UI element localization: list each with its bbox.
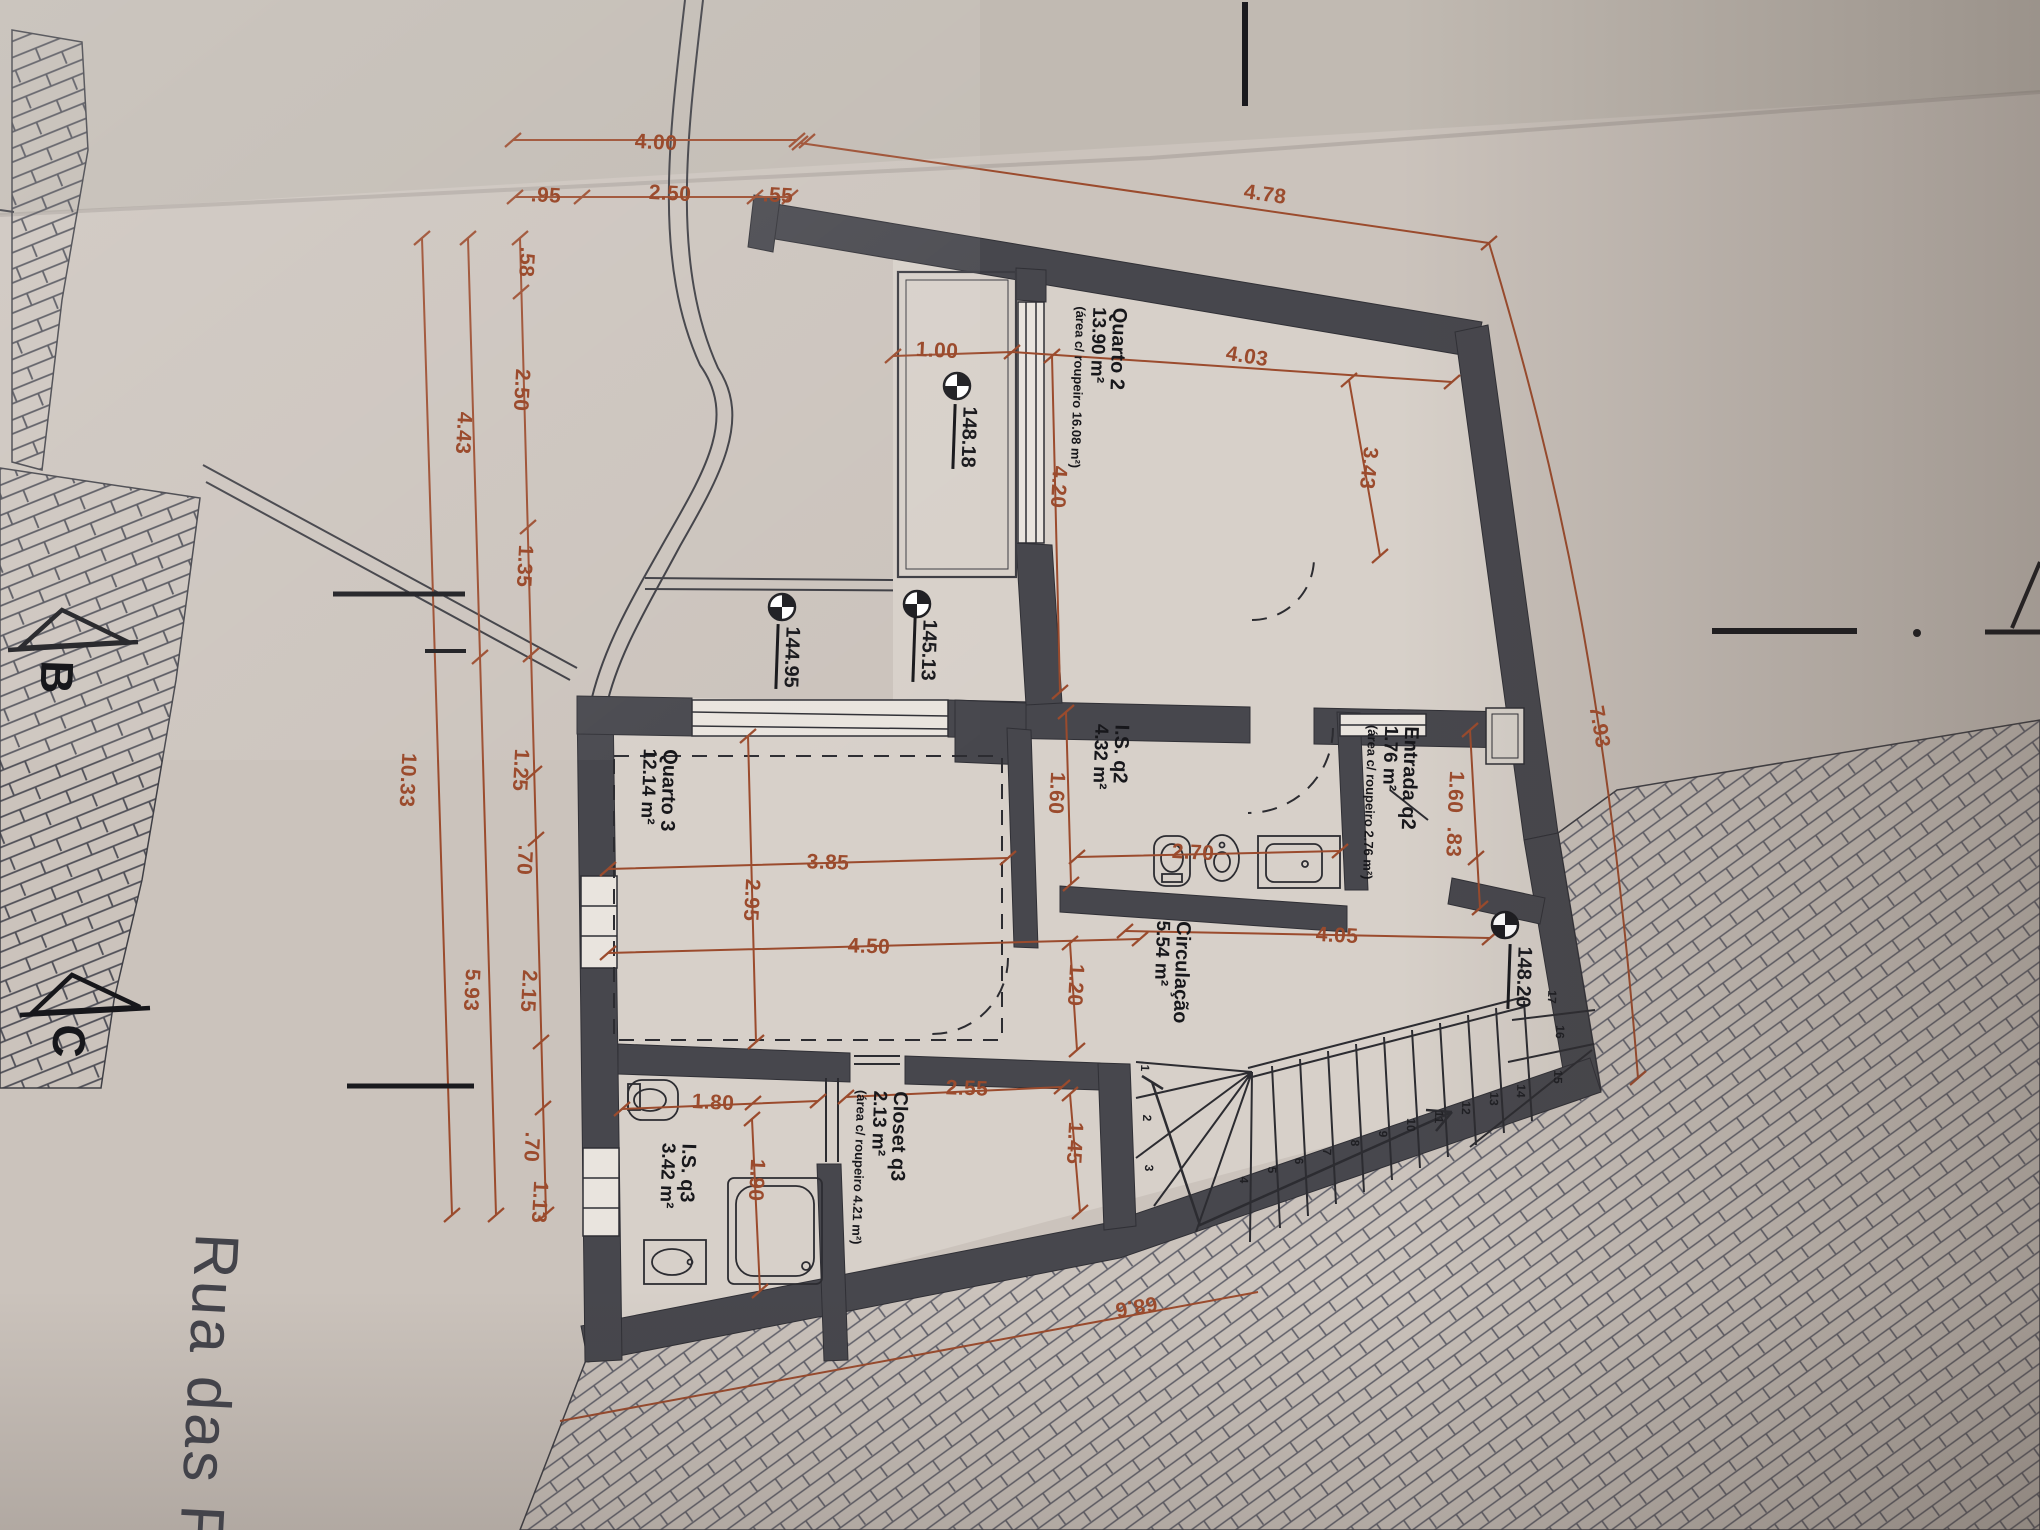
level-148-18: 148.18: [951, 404, 980, 470]
stair-number: 9: [1376, 1130, 1390, 1137]
section-letter-b: B: [29, 659, 84, 694]
stair-number: 2: [1140, 1114, 1154, 1121]
dim-top-2-50: 2.50: [648, 181, 692, 207]
stair-number: 11: [1432, 1110, 1446, 1123]
stair-number: 1: [1138, 1064, 1152, 1071]
stair-number: 15: [1551, 1070, 1565, 1084]
room-label-entrada-q2: Entrada q2 1.76 m² (área c/ roupeiro 2.7…: [1360, 725, 1423, 882]
level-145-13: 145.13: [911, 617, 940, 683]
dim-chain-0-70-a: .70: [511, 844, 537, 876]
dim-chain-1-25: 1.25: [507, 748, 533, 792]
dim-2-55: 2.55: [945, 1076, 988, 1101]
dim-2-95: 2.95: [738, 878, 764, 922]
stair-number: 4: [1237, 1176, 1251, 1183]
dim-chain-4-43: 4.43: [450, 411, 476, 455]
dim-1-45: 1.45: [1061, 1121, 1087, 1165]
dim-chain-1-13: 1.13: [526, 1180, 552, 1224]
dim-4-05: 4.05: [1315, 923, 1359, 949]
stair-number: 6: [1292, 1157, 1306, 1164]
room-label-quarto2: Quarto 2 13.90 m² (área c/ roupeiro 16.0…: [1068, 306, 1131, 470]
room-quarto3-area: 12.14 m²: [635, 748, 659, 831]
stair-number: 7: [1320, 1148, 1334, 1155]
stair-number: 14: [1514, 1084, 1528, 1098]
dim-chain-10-33: 10.33: [394, 752, 421, 808]
room-label-closet-q3: Closet q3 2.13 m² (área c/ roupeiro 4.21…: [849, 1090, 912, 1247]
dim-chain-5-93: 5.93: [458, 968, 484, 1012]
stair-number: 3: [1142, 1164, 1156, 1171]
dim-1-20: 1.20: [1062, 963, 1088, 1007]
dim-1-90: 1.90: [743, 1158, 769, 1202]
dim-3-85: 3.85: [806, 850, 849, 875]
level-148-20: 148.20: [1506, 944, 1535, 1010]
plan-linework: [0, 0, 2040, 1530]
section-letter-c: C: [41, 1023, 96, 1058]
dim-3-43: 3.43: [1354, 446, 1382, 491]
dim-4-20: 4.20: [1045, 465, 1071, 509]
stair-number: 10: [1404, 1118, 1418, 1132]
room-is-q2-area: 4.32 m²: [1087, 724, 1110, 790]
stair-number: 17: [1545, 990, 1559, 1004]
dim-chain-2-50: 2.50: [508, 368, 534, 412]
dim-chain-0-70-b: .70: [518, 1131, 544, 1163]
stair-number: 8: [1348, 1139, 1362, 1146]
room-label-is-q3: I.S. q3 3.42 m²: [654, 1143, 699, 1210]
dim-top-0-95: .95: [530, 183, 562, 209]
dim-2-70: 2.70: [1171, 840, 1215, 866]
room-is-q3-name: I.S. q3: [675, 1143, 699, 1209]
stair-number: 5: [1265, 1166, 1279, 1173]
dim-0-83: .83: [1440, 826, 1466, 858]
dim-top-4-00: 4.00: [634, 130, 678, 156]
dim-chain-1-35: 1.35: [511, 544, 537, 588]
dim-chain-2-15: 2.15: [515, 969, 541, 1013]
dim-4-50: 4.50: [847, 934, 890, 959]
room-is-q3-area: 3.42 m²: [654, 1143, 677, 1209]
room-label-is-q2: I.S. q2 4.32 m²: [1087, 724, 1132, 791]
level-144-95: 144.95: [774, 624, 803, 690]
dim-1-60-right: 1.60: [1442, 770, 1468, 814]
dim-chain-0-58: .58: [513, 246, 539, 278]
stair-number: 13: [1487, 1092, 1501, 1106]
dim-1-80: 1.80: [691, 1090, 735, 1116]
stair-number: 12: [1459, 1101, 1473, 1115]
dim-top-0-55: .55: [762, 183, 794, 209]
room-quarto3-name: Quarto 3: [656, 749, 681, 832]
room-label-quarto3: Quarto 3 12.14 m²: [635, 748, 681, 832]
floor-plan-photo: 4.00 .95 2.50 .55 4.78 .58 2.50 1.35 1.2…: [0, 0, 2040, 1530]
stair-number: 16: [1553, 1025, 1567, 1039]
dim-1-60-left: 1.60: [1043, 771, 1069, 815]
room-is-q2-name: I.S. q2: [1108, 724, 1132, 790]
room-label-circulacao: Circulação 5.54 m²: [1148, 920, 1194, 1024]
dim-1-00: 1.00: [915, 338, 959, 364]
